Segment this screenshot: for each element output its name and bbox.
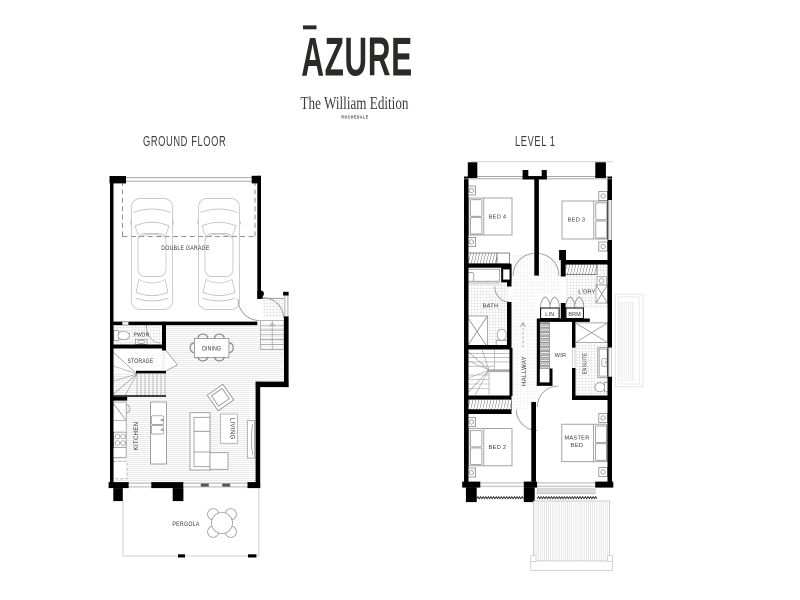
svg-text:BED 4: BED 4 <box>489 215 507 221</box>
svg-text:BATH: BATH <box>483 304 499 310</box>
svg-text:GROUND FLOOR: GROUND FLOOR <box>143 133 226 150</box>
svg-text:PERGOLA: PERGOLA <box>172 522 199 528</box>
svg-text:MASTER: MASTER <box>564 436 589 442</box>
svg-text:BRM: BRM <box>568 312 581 318</box>
svg-text:PWDR: PWDR <box>134 332 150 338</box>
svg-text:KITCHEN: KITCHEN <box>134 422 140 451</box>
svg-text:BED: BED <box>571 443 583 449</box>
svg-text:LIN: LIN <box>545 312 554 318</box>
svg-text:BED 3: BED 3 <box>568 218 586 224</box>
svg-text:LEVEL 1: LEVEL 1 <box>515 133 556 150</box>
svg-text:WIR: WIR <box>555 353 567 359</box>
svg-text:DOUBLE GARAGE: DOUBLE GARAGE <box>161 245 209 251</box>
svg-text:BED 2: BED 2 <box>489 445 507 451</box>
svg-text:ENSUITE: ENSUITE <box>582 352 588 374</box>
svg-text:AZURE: AZURE <box>301 28 413 88</box>
svg-text:ROCHEDALE: ROCHEDALE <box>341 114 368 120</box>
svg-text:LIVING: LIVING <box>229 418 235 440</box>
svg-text:The William Edition: The William Edition <box>301 94 409 113</box>
svg-text:DINING: DINING <box>202 346 221 352</box>
svg-text:STORAGE: STORAGE <box>128 359 154 365</box>
svg-text:L'DRY: L'DRY <box>578 290 595 296</box>
svg-text:HALLWAY: HALLWAY <box>522 356 528 386</box>
